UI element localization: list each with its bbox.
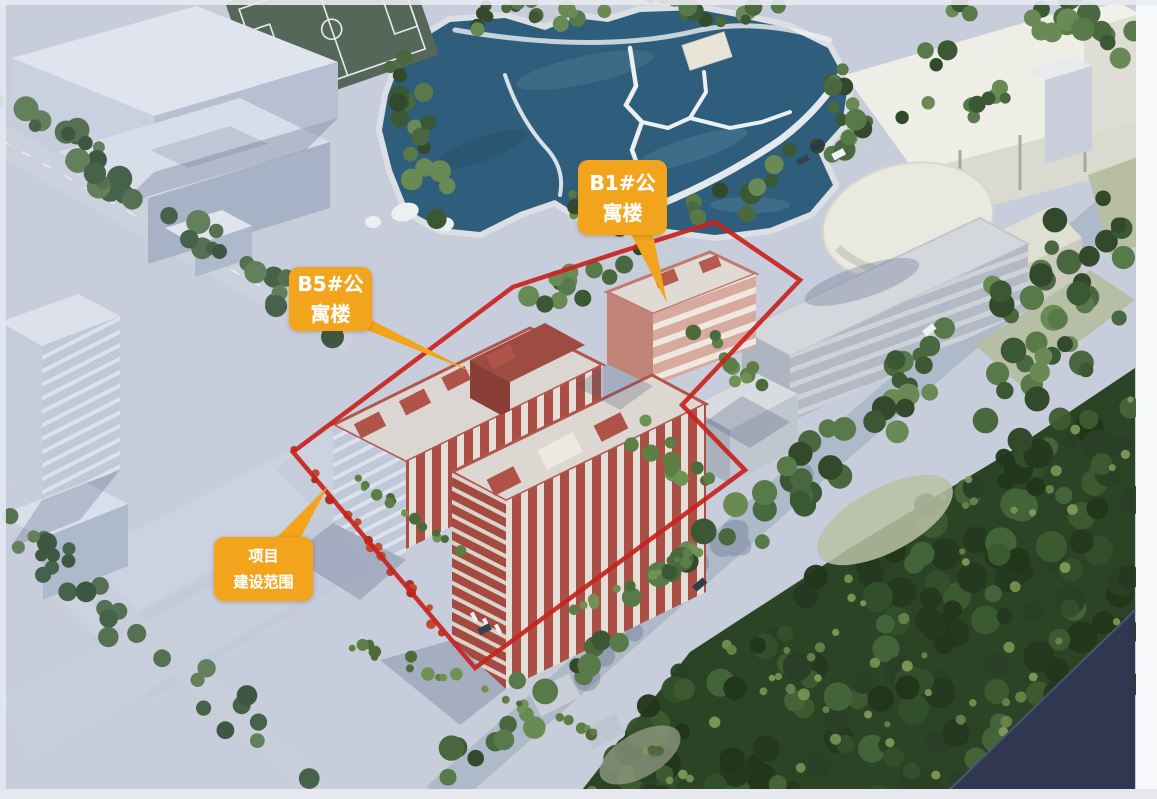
b1-apartment-callout: B1#公 寓楼: [578, 160, 667, 235]
construction-scope-callout: 项目 建设范围: [214, 537, 313, 601]
b5-callout-line1: B5#公: [298, 269, 364, 299]
scope-callout-line2: 建设范围: [233, 569, 293, 595]
scene-svg: [0, 0, 1157, 799]
aerial-render: B1#公 寓楼 B5#公 寓楼 项目 建设范围: [0, 0, 1157, 799]
b1-callout-line1: B1#公: [590, 168, 656, 198]
b1-callout-line2: 寓楼: [603, 198, 643, 228]
b5-callout-line2: 寓楼: [311, 299, 351, 329]
b5-apartment-callout: B5#公 寓楼: [289, 267, 372, 331]
scope-callout-line1: 项目: [248, 543, 278, 569]
